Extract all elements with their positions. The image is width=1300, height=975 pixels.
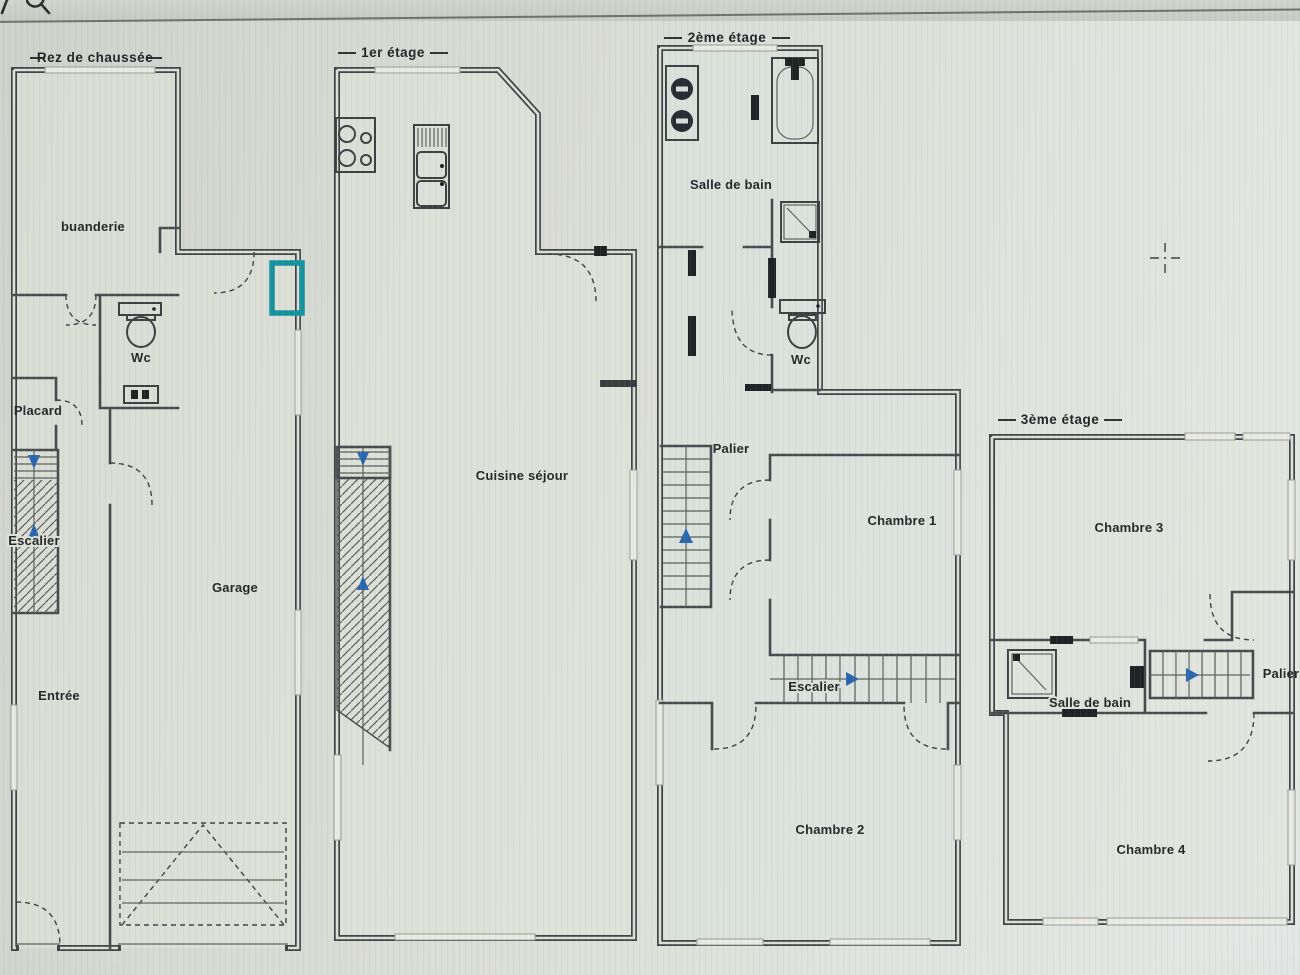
room-label-palier: Palier bbox=[713, 441, 750, 456]
window bbox=[1243, 433, 1290, 440]
window bbox=[1107, 918, 1287, 925]
window bbox=[11, 705, 17, 790]
window bbox=[45, 67, 155, 73]
room-label-chambre1: Chambre 1 bbox=[868, 513, 937, 528]
window bbox=[830, 939, 930, 945]
window bbox=[1288, 790, 1295, 865]
floor-title-etage2: 2ème étage bbox=[688, 30, 767, 45]
room-label-escalier: Escalier bbox=[788, 679, 839, 694]
room-label-placard: Placard bbox=[14, 403, 62, 418]
room-label-wc: Wc bbox=[131, 350, 151, 365]
window bbox=[1288, 480, 1295, 560]
room-label-palier: Palier bbox=[1263, 666, 1300, 681]
room-label-cuisine-sejour: Cuisine séjour bbox=[476, 468, 568, 483]
window bbox=[693, 45, 777, 51]
window bbox=[954, 470, 961, 555]
floor-title-etage1-group: 1er étage bbox=[338, 45, 448, 60]
floor-plan-etage3: 3ème étage bbox=[992, 412, 1299, 925]
floor-title-etage2-group: 2ème étage bbox=[664, 30, 790, 45]
room-label-chambre2: Chambre 2 bbox=[796, 822, 865, 837]
floor-plan-rdc: Rez de chaussée bbox=[8, 50, 302, 948]
room-label-buanderie: buanderie bbox=[61, 219, 125, 234]
crosshair-cursor bbox=[1150, 243, 1180, 273]
window bbox=[295, 610, 301, 695]
window bbox=[1185, 433, 1235, 440]
window bbox=[630, 470, 637, 560]
room-label-garage: Garage bbox=[212, 580, 258, 595]
floorplan-drawing: Rez de chaussée bbox=[0, 0, 1300, 975]
floorplan-photo: Rez de chaussée bbox=[0, 0, 1300, 975]
window bbox=[1043, 918, 1098, 925]
floor-title-rdc: Rez de chaussée bbox=[37, 50, 153, 65]
window bbox=[954, 765, 961, 840]
floor-plan-etage2: 2ème étage bbox=[656, 30, 961, 945]
room-label-chambre4: Chambre 4 bbox=[1117, 842, 1187, 857]
floor-title-rdc-group: Rez de chaussée bbox=[30, 50, 162, 65]
room-label-escalier: Escalier bbox=[8, 533, 59, 548]
window bbox=[334, 755, 341, 840]
floor-title-etage3: 3ème étage bbox=[1021, 412, 1100, 427]
floor-title-etage3-group: 3ème étage bbox=[998, 412, 1122, 427]
window bbox=[375, 67, 460, 73]
room-label-chambre3: Chambre 3 bbox=[1095, 520, 1164, 535]
window bbox=[295, 330, 301, 415]
room-label-salle-de-bain: Salle de bain bbox=[1049, 695, 1131, 710]
window bbox=[395, 934, 535, 940]
window bbox=[697, 939, 763, 945]
room-label-wc: Wc bbox=[791, 352, 811, 367]
floor-plan-etage1: 1er étage bbox=[334, 45, 637, 940]
window bbox=[656, 700, 663, 785]
room-label-entree: Entrée bbox=[38, 688, 80, 703]
room-label-salle-de-bain: Salle de bain bbox=[690, 177, 772, 192]
floor-title-etage1: 1er étage bbox=[361, 45, 425, 60]
